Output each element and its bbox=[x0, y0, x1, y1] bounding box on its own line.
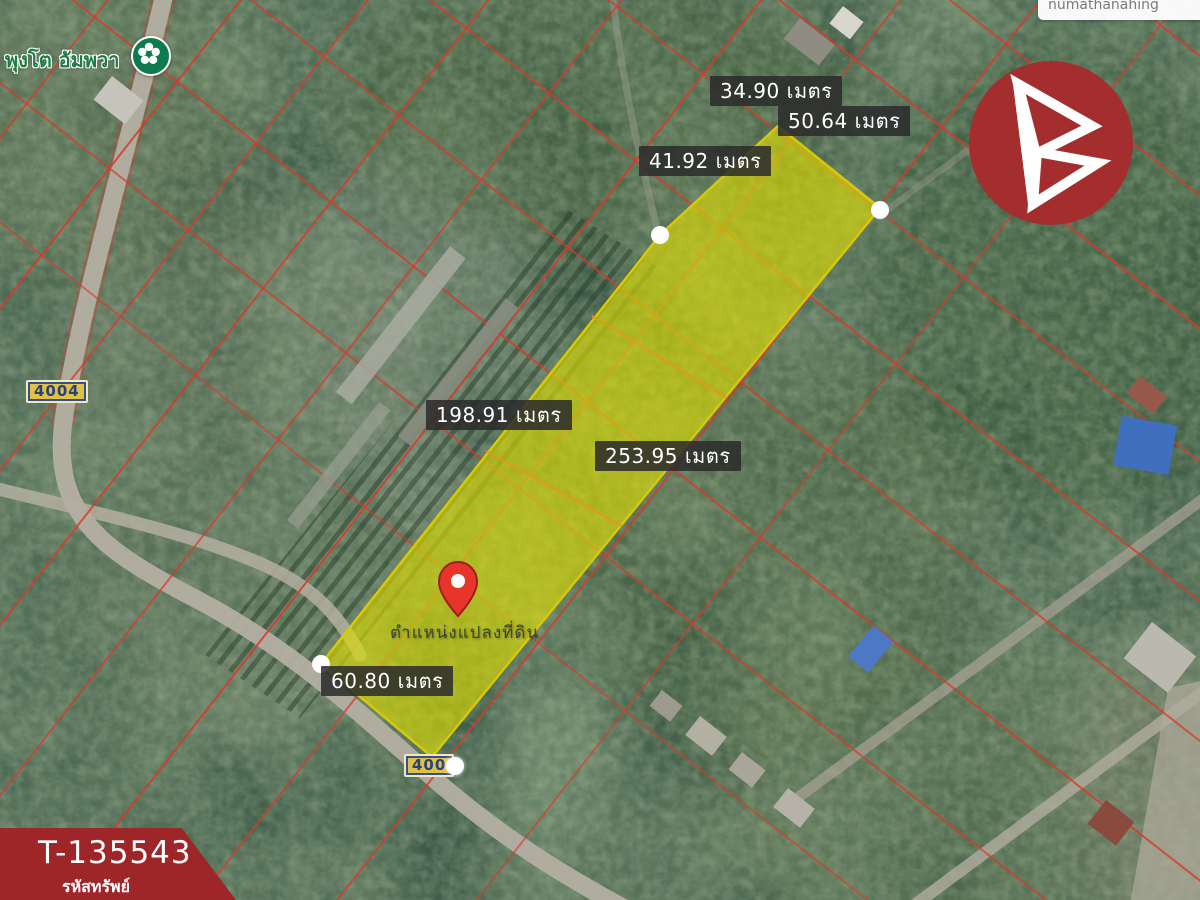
property-code: T-135543 bbox=[38, 835, 192, 871]
blue-roof-building bbox=[1113, 416, 1177, 475]
measurement-label-west: 198.91 เมตร bbox=[426, 400, 572, 430]
place-label: พุงโต อัมพวา bbox=[5, 44, 119, 76]
plot-vertex-dot bbox=[651, 226, 669, 244]
plot-vertex-dot bbox=[446, 757, 464, 775]
plot-vertex-dot bbox=[871, 201, 889, 219]
measurement-label-south: 60.80 เมตร bbox=[321, 666, 453, 696]
place-poi-icon bbox=[131, 36, 171, 76]
satellite-map-view: 34.90 เมตร 50.64 เมตร 41.92 เมตร 198.91 … bbox=[0, 0, 1200, 900]
b-triangles-icon bbox=[968, 60, 1134, 226]
pin-caption: ตำแหน่งแปลงที่ดิน bbox=[390, 619, 539, 646]
flower-icon bbox=[133, 38, 165, 70]
measurement-label-north-upper: 34.90 เมตร bbox=[710, 76, 842, 106]
map-place-label-partial: numathanahing bbox=[1038, 0, 1200, 20]
property-code-caption: รหัสทรัพย์ bbox=[62, 875, 130, 900]
route-badge-4004: 4004 bbox=[26, 380, 88, 403]
measurement-label-north-lower: 50.64 เมตร bbox=[778, 106, 910, 136]
measurement-label-east: 253.95 เมตร bbox=[595, 441, 741, 471]
brand-watermark bbox=[968, 60, 1134, 226]
measurement-label-northwest: 41.92 เมตร bbox=[639, 146, 771, 176]
